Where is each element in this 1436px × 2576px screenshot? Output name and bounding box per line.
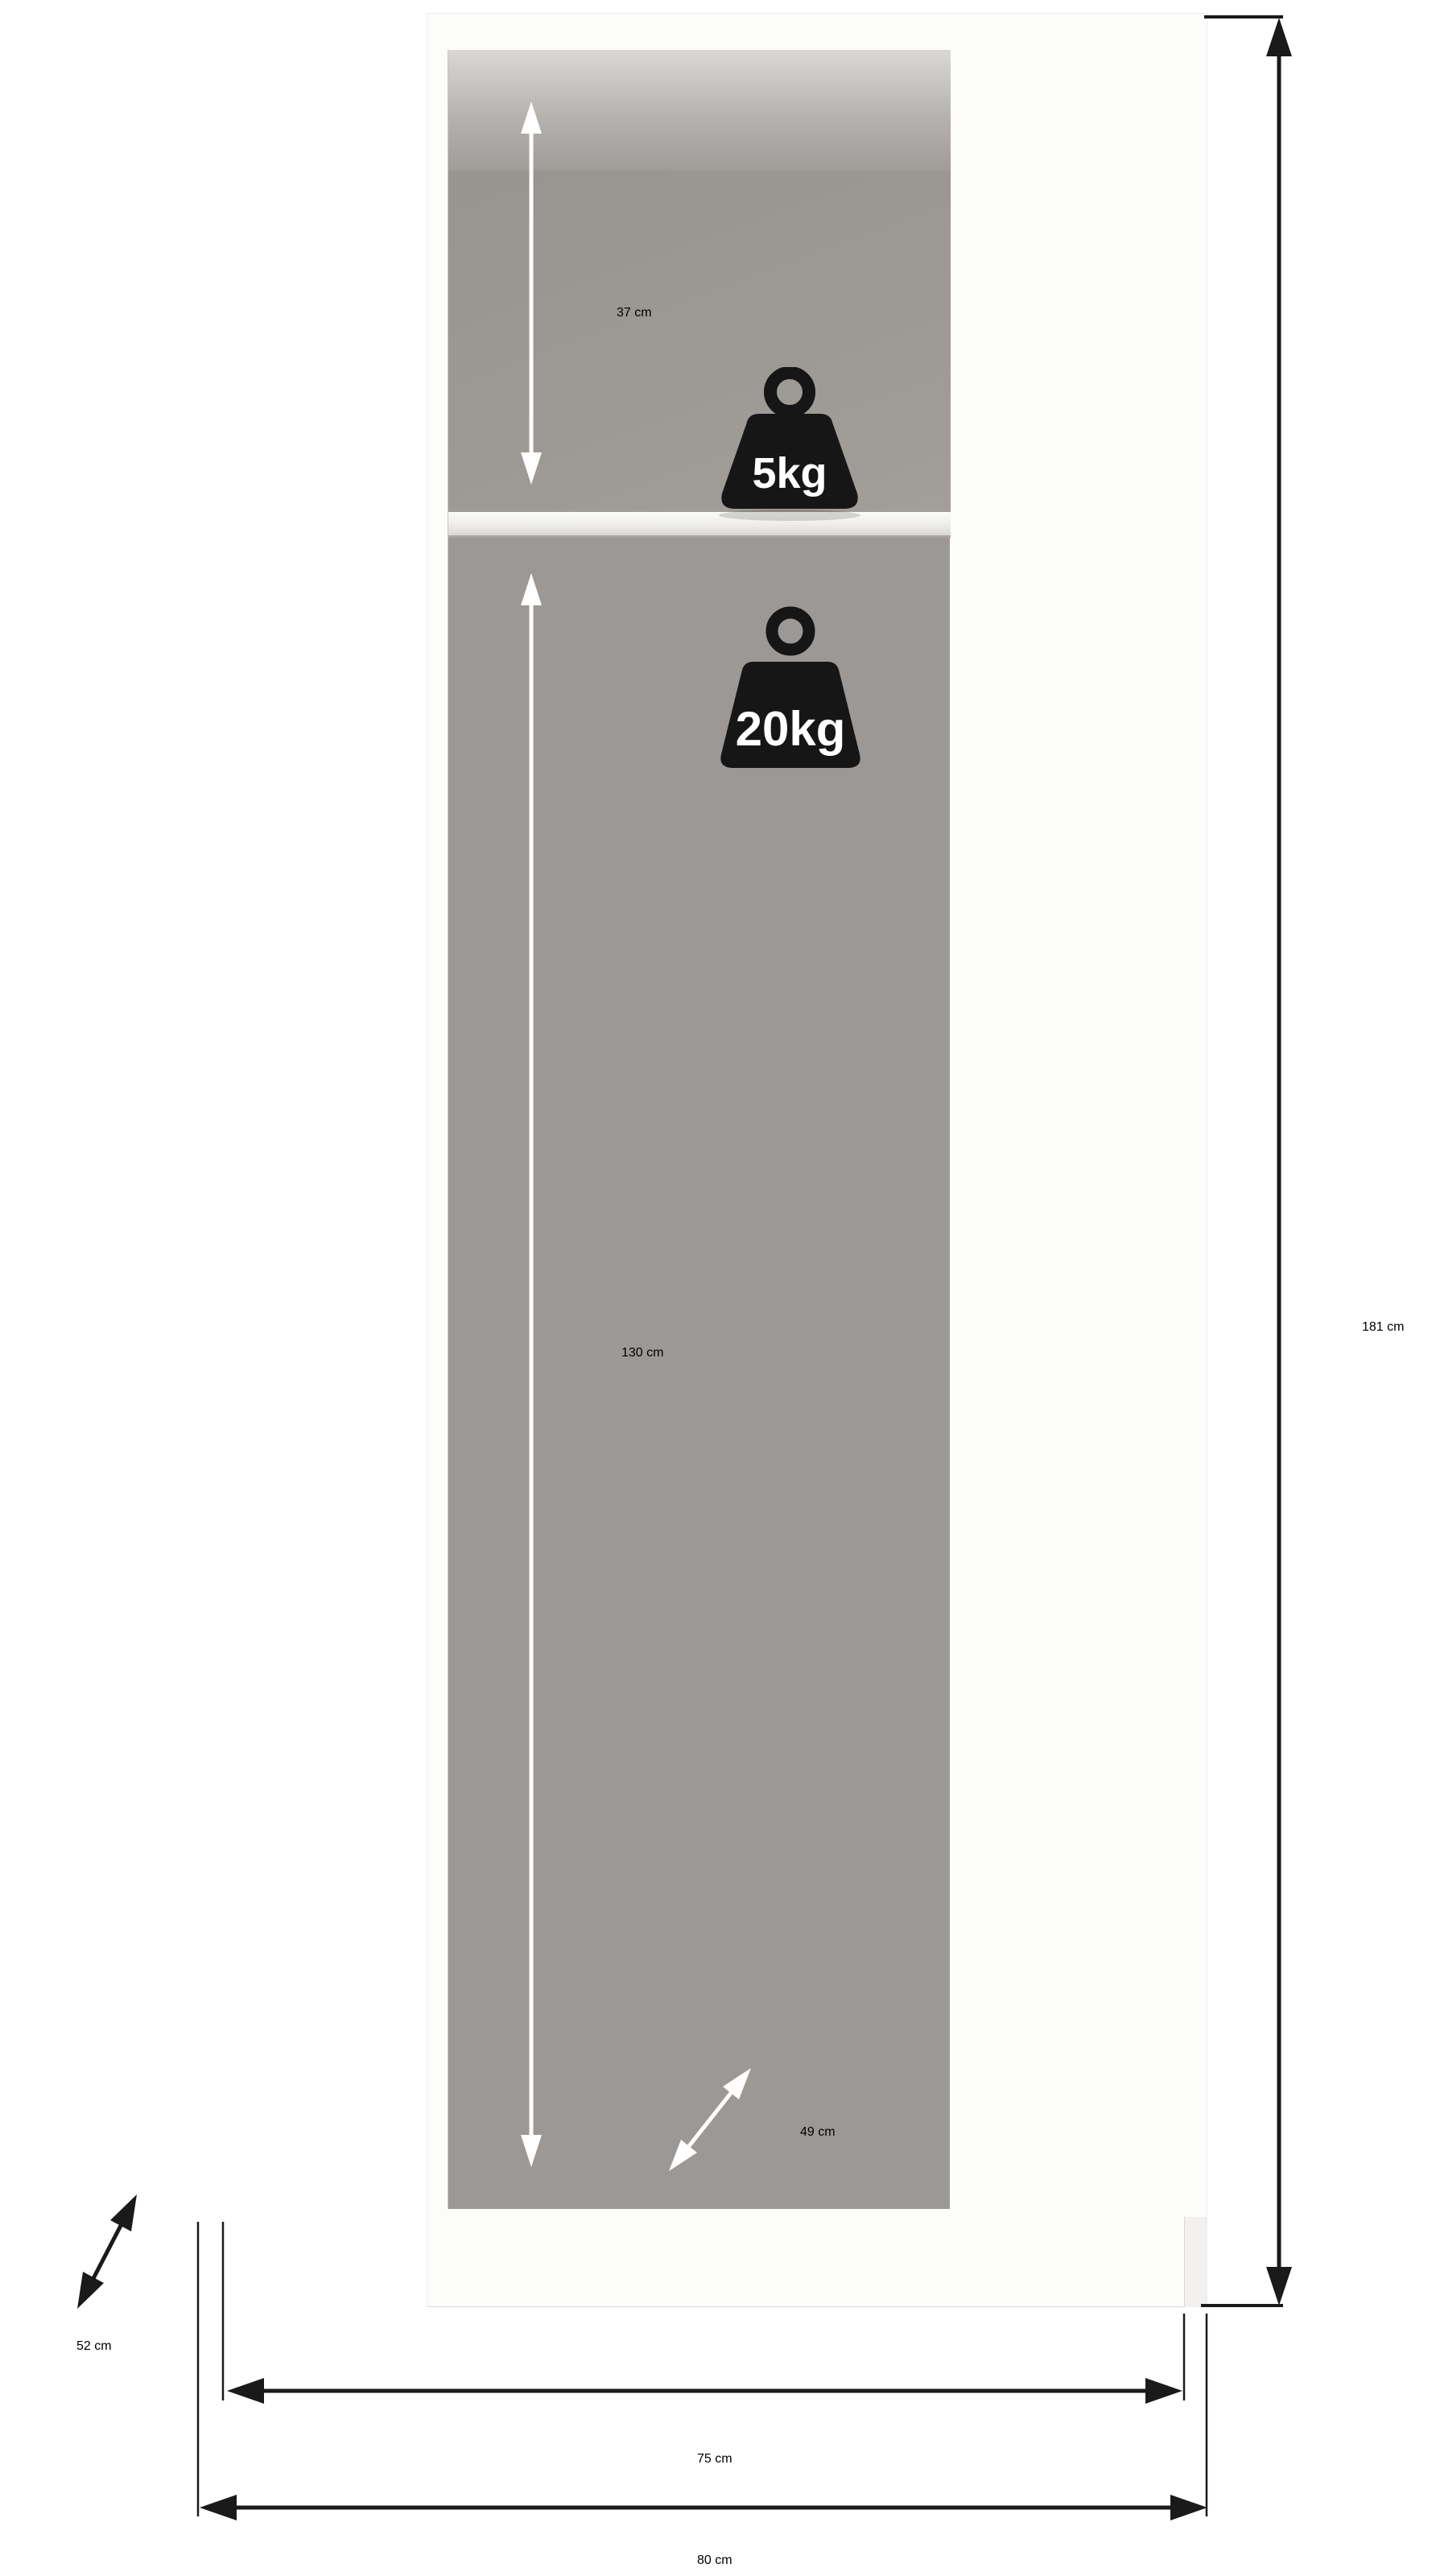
arrow-49cm <box>669 2068 751 2171</box>
label-total-height: 181 cm <box>1362 1320 1404 1335</box>
dimension-lines <box>0 0 1436 2576</box>
extension-lines <box>198 2222 1207 2516</box>
arrow-181cm <box>1201 17 1292 2306</box>
label-hanging-area-height: 130 cm <box>621 1346 663 1360</box>
arrow-75cm <box>227 2378 1182 2404</box>
arrow-80cm <box>200 2495 1207 2520</box>
label-top-compartment-height: 37 cm <box>617 306 652 320</box>
label-interior-width: 75 cm <box>697 2452 732 2467</box>
arrow-37cm <box>521 101 542 485</box>
label-total-width: 80 cm <box>697 2553 732 2568</box>
label-usable-depth: 49 cm <box>800 2125 836 2140</box>
wardrobe-dimension-diagram: 5kg 20kg <box>0 0 1436 2576</box>
arrow-130cm <box>521 573 542 2167</box>
label-total-depth: 52 cm <box>76 2339 112 2354</box>
arrow-52cm <box>77 2194 137 2309</box>
